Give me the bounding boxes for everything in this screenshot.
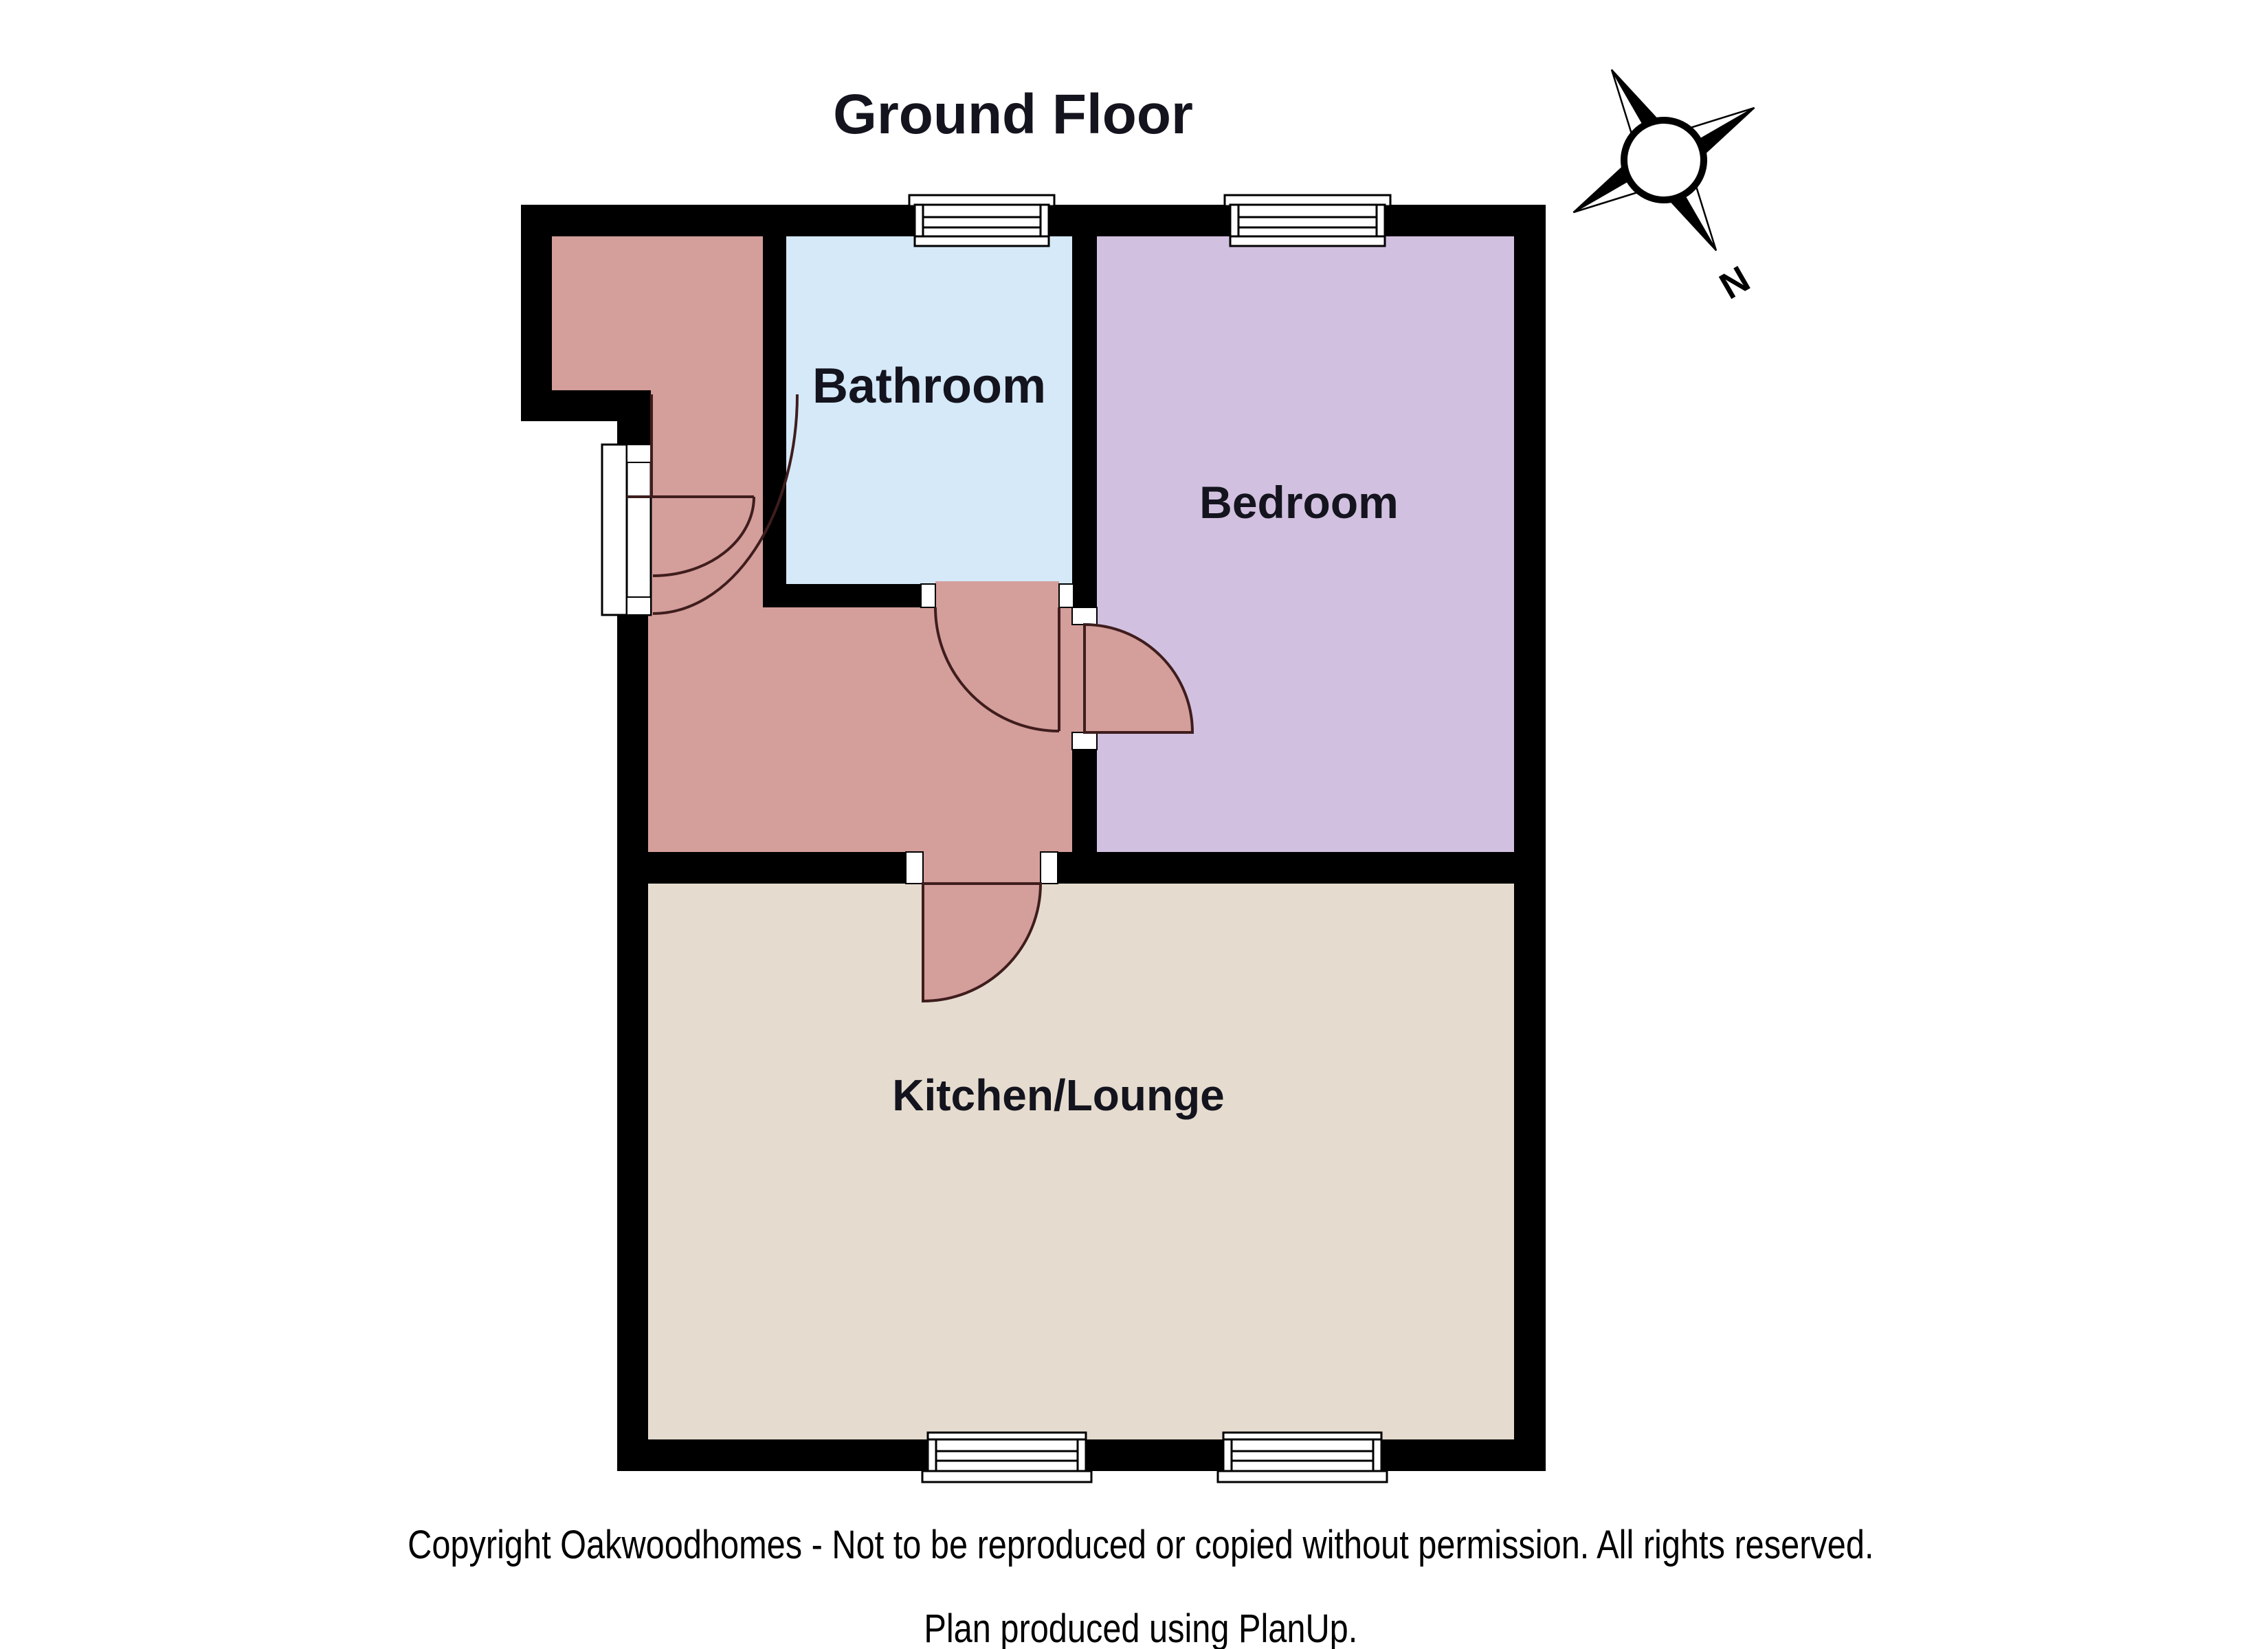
door-jamb	[627, 597, 651, 615]
door-jamb	[1072, 732, 1097, 750]
wall-segment	[1072, 236, 1097, 607]
door-jamb	[921, 584, 935, 607]
wall-segment	[763, 584, 921, 607]
door-opening-kitchen	[922, 851, 1042, 885]
door-jamb	[1041, 852, 1058, 884]
page-title: Ground Floor	[833, 83, 1193, 146]
room-kitchen-lounge-floor	[645, 881, 1517, 1442]
door-jamb	[1059, 584, 1074, 607]
room-kitchen-lounge-label: Kitchen/Lounge	[892, 1070, 1225, 1120]
door-jamb	[906, 852, 923, 884]
room-bedroom-label: Bedroom	[1199, 477, 1399, 528]
door-jamb	[627, 445, 651, 462]
door-panel	[627, 445, 651, 615]
door-jamb	[1072, 607, 1097, 625]
wall-segment	[1058, 852, 1546, 884]
window-sill	[1218, 1471, 1387, 1482]
wall-segment	[763, 236, 786, 607]
front-door-panel	[602, 445, 651, 615]
wall-segment	[617, 852, 906, 884]
window-top-bedroom	[1225, 195, 1390, 246]
door-opening-bathroom	[935, 581, 1059, 610]
wall-segment	[521, 205, 552, 421]
wall-segment	[617, 615, 648, 1471]
floor-plan: N Ground Floor Bathroom Bedroom Kitchen/…	[0, 0, 2268, 1649]
room-bathroom-label: Bathroom	[812, 359, 1046, 414]
wall-segment	[1514, 205, 1546, 1471]
window-frame	[915, 205, 1049, 246]
window-frame	[1230, 205, 1385, 246]
door-sill	[602, 445, 627, 615]
copyright-text: Copyright Oakwoodhomes - Not to be repro…	[408, 1523, 1874, 1567]
wall-segment	[521, 390, 651, 421]
room-bedroom-floor	[1094, 234, 1517, 855]
window-bottom-right	[1218, 1433, 1387, 1482]
window-top-bathroom	[909, 195, 1054, 246]
window-bottom-left	[922, 1433, 1091, 1482]
window-sill	[922, 1471, 1091, 1482]
wall-segment	[617, 421, 651, 445]
credit-text: Plan produced using PlanUp.	[924, 1607, 1357, 1649]
